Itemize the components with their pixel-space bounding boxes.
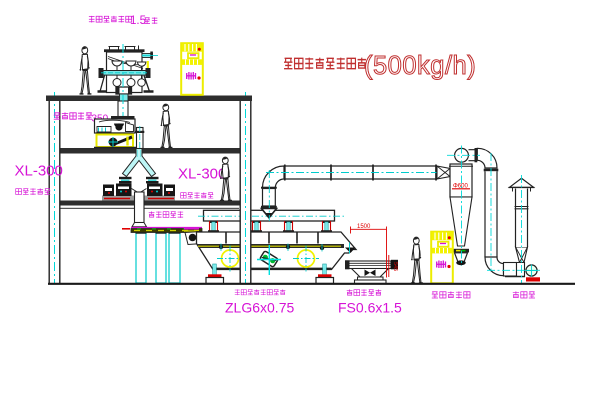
svg-text:545: 545 xyxy=(392,262,398,271)
svg-text:XL-300: XL-300 xyxy=(15,163,63,180)
svg-text:XL-300: XL-300 xyxy=(178,166,226,183)
svg-text:FS0.6x1.5: FS0.6x1.5 xyxy=(338,300,402,316)
svg-text:Φ600: Φ600 xyxy=(453,184,468,190)
svg-text:1500: 1500 xyxy=(357,224,371,230)
svg-text:(500kg/h): (500kg/h) xyxy=(364,52,476,80)
svg-text:1.5: 1.5 xyxy=(130,15,146,27)
svg-text:ZLG6x0.75: ZLG6x0.75 xyxy=(225,300,294,316)
